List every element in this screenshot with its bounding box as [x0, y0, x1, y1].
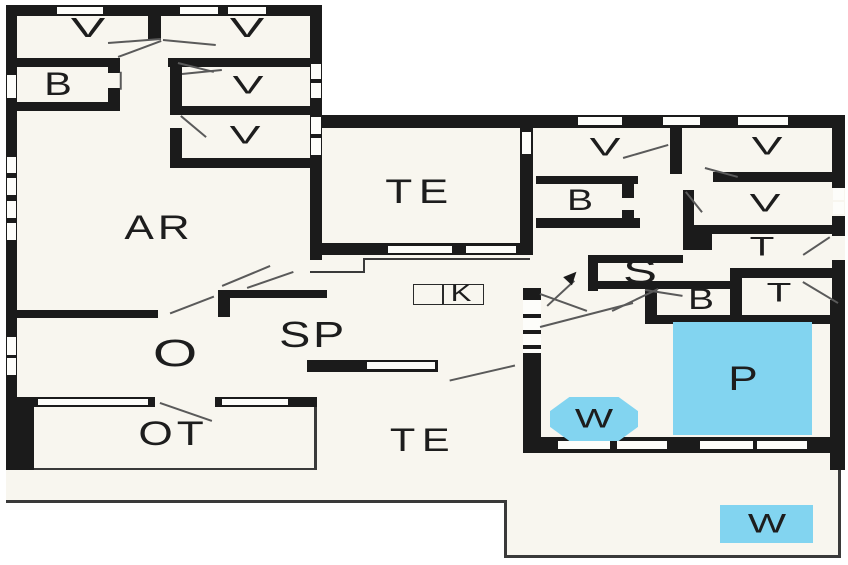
room-label-v6: V [752, 135, 783, 160]
terrace-outline [314, 407, 317, 470]
wall-segment [523, 353, 541, 445]
window-gap [578, 117, 622, 125]
window-gap [38, 399, 148, 405]
wall-segment [536, 176, 638, 184]
wall-segment [6, 398, 34, 470]
wall-segment [218, 290, 327, 298]
room-label-o: O [153, 335, 197, 373]
wall-segment [148, 5, 161, 40]
wall-segment [322, 115, 533, 128]
room-label-ot: OT [138, 417, 207, 451]
wall-segment [598, 281, 740, 289]
terrace-outline [365, 258, 530, 260]
room-label-p: P [728, 362, 757, 396]
window-gap [7, 157, 16, 173]
terrace-outline [504, 555, 841, 558]
terrace-outline [504, 500, 507, 557]
room-label-ar: AR [124, 211, 193, 245]
door-swing-line [120, 72, 122, 90]
window-mullion [523, 330, 541, 334]
wall-segment [170, 64, 182, 110]
room-label-sp: SP [279, 317, 347, 353]
window-gap [522, 132, 531, 154]
window-gap [7, 75, 16, 98]
window-gap [7, 178, 16, 195]
window-gap [466, 246, 516, 253]
room-label-b2: B [567, 186, 593, 216]
room-label-b1: B [44, 68, 72, 100]
terrace-outline [310, 271, 365, 273]
room-label-s: S [623, 255, 657, 289]
window-gap [7, 358, 16, 375]
room-label-w1: W [575, 406, 613, 433]
window-gap [7, 337, 16, 355]
window-gap [558, 441, 610, 449]
whirlpool-octagon: W [550, 397, 638, 441]
floor-area [6, 470, 317, 502]
window-mullion [523, 314, 541, 318]
wall-segment [8, 310, 158, 318]
window-gap [222, 399, 288, 405]
window-gap [757, 441, 807, 449]
window-gap [738, 117, 788, 125]
wall-segment [622, 184, 634, 198]
room-label-t1: T [750, 234, 775, 261]
wall-segment [108, 60, 120, 73]
wall-segment [588, 255, 598, 291]
kitchen-counter-box [413, 284, 484, 305]
kitchen-counter-divider [442, 284, 444, 305]
floor-plan: P W W V V B V V AR TE O SP K OT TE V V B… [0, 0, 848, 565]
wall-segment [832, 115, 845, 188]
wall-segment [536, 218, 640, 228]
room-label-te-top: TE [385, 175, 454, 209]
wall-segment [832, 216, 845, 236]
window-gap [311, 138, 321, 155]
window-gap [7, 201, 16, 218]
terrace-outline [838, 470, 841, 557]
room-label-t2: T [767, 280, 792, 307]
room-label-b3: B [688, 285, 714, 315]
room-label-v3: V [233, 74, 264, 99]
wall-segment [683, 230, 712, 250]
window-gap [617, 441, 667, 449]
window-gap [700, 441, 753, 449]
room-label-k: K [451, 282, 472, 306]
window-mullion [523, 345, 541, 349]
window-gap [311, 117, 321, 134]
wall-segment [170, 158, 312, 168]
wall-segment [670, 122, 682, 174]
wall-segment [730, 268, 845, 278]
window-gap [663, 117, 700, 125]
window-gap [833, 202, 844, 214]
terrace-outline [6, 468, 317, 470]
room-label-te-bottom: TE [390, 424, 456, 456]
window-gap [833, 188, 844, 200]
whirlpool-terrace: W [720, 505, 813, 543]
room-label-w2: W [747, 511, 785, 538]
room-label-v5: V [590, 136, 621, 161]
room-label-v1: V [71, 14, 106, 42]
window-gap [367, 362, 435, 369]
wall-segment [832, 260, 845, 300]
window-gap [388, 246, 452, 253]
room-label-v4: V [230, 124, 261, 149]
room-label-v2: V [230, 14, 265, 42]
pool-area: P [673, 322, 812, 435]
window-gap [311, 64, 321, 79]
window-gap [311, 83, 321, 98]
terrace-outline [6, 500, 506, 503]
wall-segment [523, 288, 541, 300]
wall-segment [8, 102, 120, 111]
window-gap [180, 7, 218, 14]
wall-segment [218, 290, 230, 317]
room-label-v7: V [750, 192, 781, 217]
wall-segment [108, 88, 120, 104]
wall-segment [170, 106, 312, 115]
window-gap [7, 223, 16, 240]
